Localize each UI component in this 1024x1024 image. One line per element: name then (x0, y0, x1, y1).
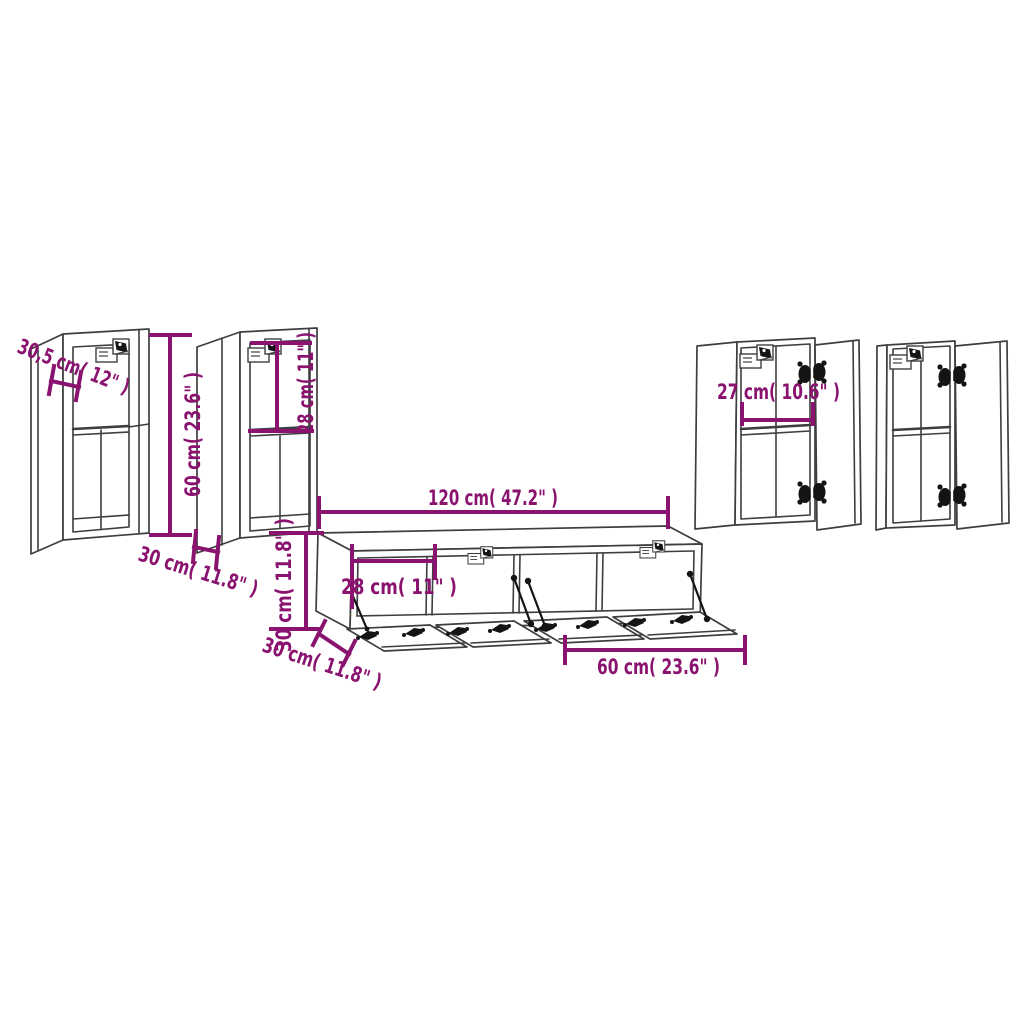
hinge-icon (937, 483, 966, 507)
dimension-diagram: 30,5 cm( 12" ) 60 cm( 23.6" ) 28 cm( 11"… (0, 0, 1024, 1024)
hinge-icon (797, 480, 826, 504)
dimension-tv-stand-total-width: 120 cm( 47.2" ) (319, 486, 668, 527)
dimension-label-tv-stand-unit-width: 60 cm( 23.6" ) (597, 655, 720, 679)
dimension-label-tv-stand-total-width: 120 cm( 47.2" ) (428, 486, 558, 510)
hinge-icon (937, 363, 966, 387)
diagram-canvas: 30,5 cm( 12" ) 60 cm( 23.6" ) 28 cm( 11"… (0, 0, 1024, 1024)
wall-cabinet-right-1 (695, 338, 861, 530)
dimension-label-side-cabinet-inner-width: 27 cm( 10.6" ) (717, 380, 840, 404)
dimension-tv-stand-unit-width: 60 cm( 23.6" ) (565, 637, 745, 679)
wall-cabinet-right-2 (876, 341, 1009, 530)
dimension-label-tv-stand-compartment-width: 28 cm( 11" ) (341, 575, 457, 599)
dimension-tv-stand-height: 30 cm( 11.8" ) (271, 518, 322, 652)
dimension-label-tv-stand-depth: 30 cm( 11.8" ) (259, 633, 384, 694)
cabinet-side-panel (695, 342, 737, 529)
dimension-label-cabinet1-height: 60 cm( 23.6" ) (181, 372, 205, 497)
dimension-label-tv-stand-height: 30 cm( 11.8" ) (272, 518, 296, 652)
dimension-label-cabinet2-top-section-height: 28 cm( 11" ) (294, 332, 318, 434)
